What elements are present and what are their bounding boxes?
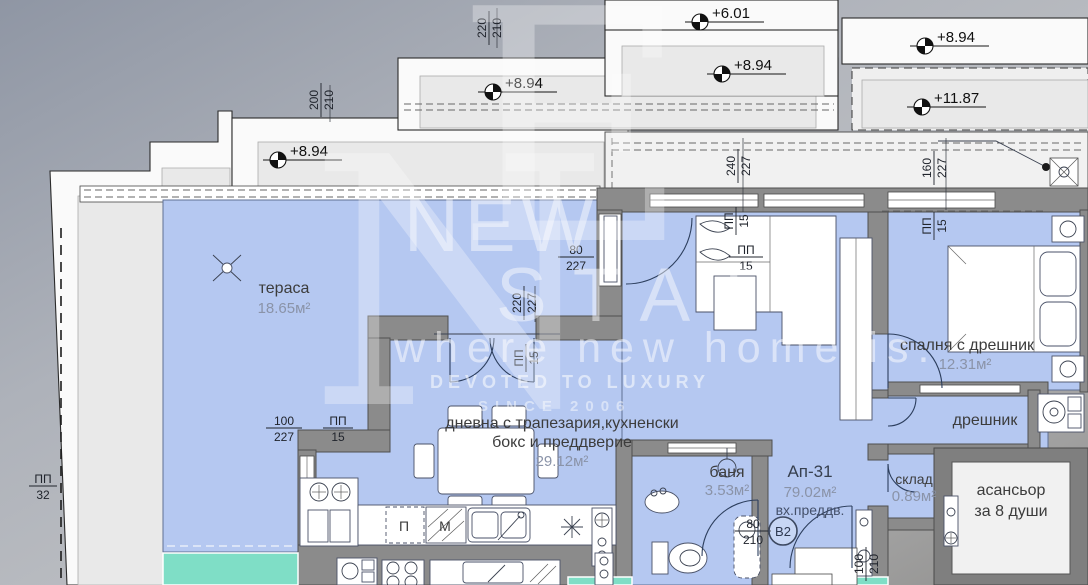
svg-text:227: 227 [935,158,949,178]
svg-text:80: 80 [569,243,583,257]
living-area: 29.12м² [536,453,589,470]
apartment-number: Ап-31 [787,462,832,481]
svg-text:200: 200 [307,90,321,110]
washer-dryer [1038,394,1084,432]
svg-text:210: 210 [743,533,763,547]
elevator-label-2: за 8 души [974,503,1047,520]
svg-text:ПП: ПП [722,212,736,229]
unit-badge: B2 [769,517,797,545]
svg-text:100: 100 [852,554,866,574]
bedroom-area: 12.31м² [939,356,992,373]
svg-text:+11.87: +11.87 [934,90,979,107]
svg-text:15: 15 [935,219,949,233]
bedroom-label: спалня с дрешник [900,337,1035,354]
svg-text:227: 227 [525,293,539,313]
apartment-area: 79.02м² [784,484,837,501]
svg-text:15: 15 [527,351,541,365]
dishwasher-label: П [399,518,409,534]
lower-terrace-teal [163,553,298,585]
toilet [652,542,707,574]
elevator-door [944,496,958,546]
closet-window-band [920,385,1020,393]
svg-text:100: 100 [274,414,294,428]
apartment-sub: вх.преддв. [776,502,845,518]
svg-text:ПП: ПП [920,217,934,234]
svg-text:15: 15 [739,259,753,273]
svg-text:240: 240 [724,156,738,176]
svg-text:ПП: ПП [737,243,754,257]
svg-text:ПП: ПП [512,349,526,366]
storage-door-gap [866,458,890,508]
svg-text:15: 15 [737,214,751,228]
nightstand-2 [1052,356,1084,382]
svg-text:210: 210 [490,18,504,38]
washer-label: М [439,518,451,534]
svg-text:220: 220 [510,293,524,313]
elevator-label-1: асансьор [977,482,1046,499]
pipe-node [1042,163,1050,171]
living-label-1: дневна с трапезария,кухненски [445,415,678,432]
svg-text:160: 160 [920,158,934,178]
storage-label: склад [895,471,932,487]
svg-text:+8.94: +8.94 [937,29,975,46]
nightstand-1 [1052,216,1084,242]
svg-text:32: 32 [36,488,50,502]
svg-text:80: 80 [746,517,760,531]
light-symbol [561,516,583,538]
floorplan-screenshot: 220 210 200 210 80 227 ПП 15 220 227 ПП … [0,0,1088,585]
svg-text:220: 220 [475,18,489,38]
svg-text:+8.94: +8.94 [290,143,328,160]
wardrobe [840,238,872,420]
closet-label: дрешник [953,412,1019,429]
svg-text:210: 210 [322,90,336,110]
svg-text:227: 227 [274,430,294,444]
svg-text:+8.94: +8.94 [734,57,772,74]
terrace-area: 18.65м² [258,300,311,317]
bath-label: баня [709,464,744,481]
unit-badge-label: B2 [775,524,791,539]
svg-text:ПП: ПП [329,414,346,428]
svg-text:+6.01: +6.01 [712,5,750,22]
living-label-2: бокс и преддверие [492,434,632,451]
bath-window [668,443,736,453]
svg-text:15: 15 [331,430,345,444]
bath-area: 3.53м² [705,482,750,499]
svg-text:227: 227 [566,259,586,273]
svg-text:227: 227 [739,156,753,176]
svg-text:210: 210 [867,554,881,574]
svg-text:+8.94: +8.94 [505,75,543,92]
side-table [714,276,756,330]
living-window-2 [764,194,864,207]
storage-area: 0.89м² [892,488,937,505]
svg-text:ПП: ПП [34,472,51,486]
drain-icon [1050,158,1078,186]
living-window-1 [650,194,758,207]
floorplan-drawing: 220 210 200 210 80 227 ПП 15 220 227 ПП … [0,0,1088,585]
terrace-label: тераса [259,280,310,297]
